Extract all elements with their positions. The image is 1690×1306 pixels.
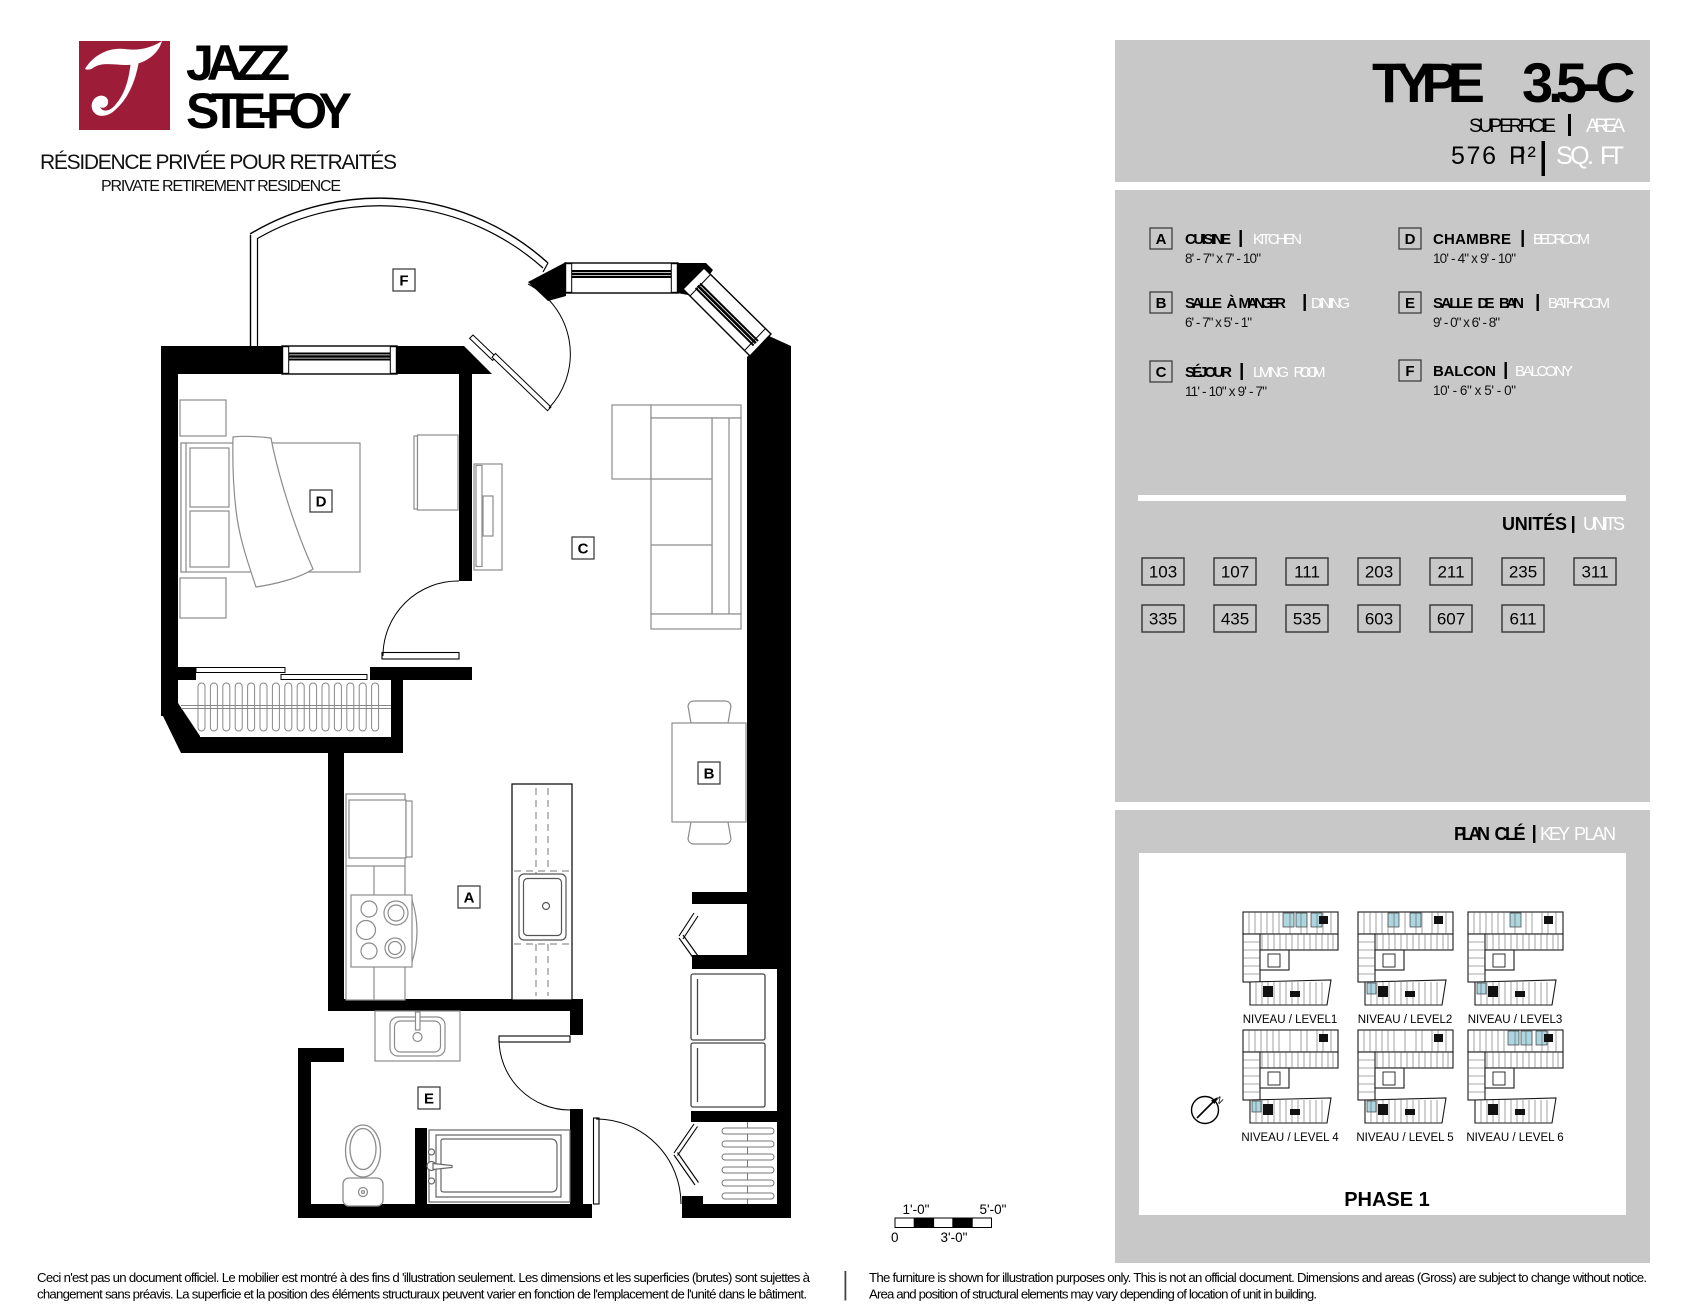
svg-text:9' - 0" x 6' - 8": 9' - 0" x 6' - 8" bbox=[1433, 315, 1500, 330]
svg-text:DINING: DINING bbox=[1311, 295, 1350, 312]
svg-text:DE: DE bbox=[1478, 295, 1495, 312]
svg-text:CUISINE: CUISINE bbox=[1185, 231, 1231, 248]
svg-text:AREA: AREA bbox=[1586, 115, 1625, 137]
svg-text:607: 607 bbox=[1437, 610, 1465, 629]
svg-text:3'-0": 3'-0" bbox=[941, 1230, 968, 1245]
svg-text:SÉJOUR: SÉJOUR bbox=[1185, 364, 1232, 381]
svg-text:8' - 7" x 7' - 10": 8' - 7" x 7' - 10" bbox=[1185, 251, 1261, 266]
svg-text:10' - 4" x 9' - 10": 10' - 4" x 9' - 10" bbox=[1433, 251, 1516, 266]
svg-text:C: C bbox=[1595, 51, 1635, 114]
svg-text:B: B bbox=[1156, 295, 1167, 312]
svg-text:NIVEAU / LEVEL 5: NIVEAU / LEVEL 5 bbox=[1356, 1132, 1453, 1144]
svg-text:A: A bbox=[464, 890, 475, 907]
svg-text:C: C bbox=[578, 541, 589, 558]
svg-text:PI: PI bbox=[1509, 142, 1526, 170]
svg-text:6' - 7" x 5' - 1": 6' - 7" x 5' - 1" bbox=[1185, 315, 1252, 330]
svg-text:NIVEAU / LEVEL 4: NIVEAU / LEVEL 4 bbox=[1241, 1132, 1339, 1144]
svg-text:BALCONY: BALCONY bbox=[1515, 363, 1573, 380]
svg-text:603: 603 bbox=[1365, 610, 1393, 629]
svg-text:E: E bbox=[424, 1091, 434, 1108]
svg-text:435: 435 bbox=[1221, 610, 1249, 629]
svg-text:C: C bbox=[1156, 364, 1167, 381]
svg-text:PLAN: PLAN bbox=[1454, 824, 1490, 844]
svg-text:UNITÉS: UNITÉS bbox=[1502, 513, 1567, 534]
svg-text:MANGER: MANGER bbox=[1239, 295, 1287, 312]
svg-text:SQ.: SQ. bbox=[1556, 142, 1594, 170]
svg-text:ROOM: ROOM bbox=[1294, 364, 1326, 381]
svg-text:Area and position of structura: Area and position of structural elements… bbox=[869, 1287, 1317, 1302]
svg-text:SALLE: SALLE bbox=[1185, 295, 1222, 312]
svg-text:PHASE 1: PHASE 1 bbox=[1344, 1189, 1430, 1211]
svg-text:335: 335 bbox=[1149, 610, 1177, 629]
svg-text:E: E bbox=[1405, 295, 1415, 312]
svg-text:1'-0": 1'-0" bbox=[903, 1202, 930, 1217]
svg-text:STE-FOY: STE-FOY bbox=[186, 83, 352, 139]
svg-text:11' - 10" x 9' - 7": 11' - 10" x 9' - 7" bbox=[1185, 384, 1267, 399]
svg-text:PRIVATE RETIREMENT RESIDENCE: PRIVATE RETIREMENT RESIDENCE bbox=[101, 178, 341, 195]
svg-text:A: A bbox=[1156, 231, 1167, 248]
svg-text:D: D bbox=[1405, 231, 1416, 248]
svg-text:107: 107 bbox=[1221, 563, 1249, 582]
svg-text:UNITS: UNITS bbox=[1583, 514, 1625, 534]
svg-text:NIVEAU / LEVEL3: NIVEAU / LEVEL3 bbox=[1468, 1014, 1563, 1026]
svg-text:Ceci n'est pas un document off: Ceci n'est pas un document officiel. Le … bbox=[37, 1270, 811, 1285]
svg-text:NIVEAU / LEVEL1: NIVEAU / LEVEL1 bbox=[1243, 1014, 1338, 1026]
svg-text:²: ² bbox=[1528, 142, 1536, 170]
svg-text:BALCON: BALCON bbox=[1433, 363, 1496, 380]
svg-text:F: F bbox=[399, 273, 408, 290]
svg-text:103: 103 bbox=[1149, 563, 1177, 582]
svg-text:B: B bbox=[704, 766, 715, 783]
svg-text:211: 211 bbox=[1437, 563, 1464, 582]
svg-text:À: À bbox=[1227, 295, 1238, 312]
svg-text:KEY: KEY bbox=[1540, 824, 1570, 844]
svg-text:KITCHEN: KITCHEN bbox=[1253, 231, 1302, 248]
svg-text:BAIN: BAIN bbox=[1499, 295, 1524, 312]
svg-text:CLÉ: CLÉ bbox=[1495, 823, 1526, 844]
svg-text:NIVEAU / LEVEL 6: NIVEAU / LEVEL 6 bbox=[1466, 1132, 1563, 1144]
svg-text:NIVEAU / LEVEL2: NIVEAU / LEVEL2 bbox=[1358, 1014, 1453, 1026]
svg-text:576: 576 bbox=[1451, 142, 1496, 170]
svg-text:SUPERFICIE: SUPERFICIE bbox=[1469, 115, 1556, 137]
svg-text:111: 111 bbox=[1294, 563, 1320, 582]
svg-text:The furniture is shown for ill: The furniture is shown for illustration … bbox=[869, 1270, 1647, 1285]
svg-text:TYPE: TYPE bbox=[1372, 51, 1485, 114]
svg-text:PLAN: PLAN bbox=[1574, 824, 1616, 844]
svg-text:changement sans préavis. La su: changement sans préavis. La superficie e… bbox=[37, 1287, 807, 1302]
svg-text:BATHROOM: BATHROOM bbox=[1548, 295, 1610, 312]
svg-text:LIVING: LIVING bbox=[1253, 364, 1289, 381]
svg-text:611: 611 bbox=[1509, 610, 1536, 629]
svg-text:203: 203 bbox=[1365, 563, 1393, 582]
svg-text:535: 535 bbox=[1293, 610, 1321, 629]
svg-text:CHAMBRE: CHAMBRE bbox=[1433, 231, 1511, 248]
svg-text:10' - 6" x 5' - 0": 10' - 6" x 5' - 0" bbox=[1433, 383, 1516, 398]
svg-text:5'-0": 5'-0" bbox=[980, 1202, 1007, 1217]
svg-text:F: F bbox=[1405, 363, 1414, 380]
svg-text:FT: FT bbox=[1600, 142, 1624, 170]
svg-text:235: 235 bbox=[1509, 563, 1537, 582]
svg-text:0: 0 bbox=[891, 1230, 899, 1245]
svg-text:RÉSIDENCE PRIVÉE POUR RETRAITÉ: RÉSIDENCE PRIVÉE POUR RETRAITÉS bbox=[40, 151, 397, 174]
svg-text:D: D bbox=[316, 494, 327, 511]
svg-text:BEDROOM: BEDROOM bbox=[1533, 231, 1590, 248]
svg-text:311: 311 bbox=[1581, 563, 1608, 582]
svg-text:SALLE: SALLE bbox=[1433, 295, 1473, 312]
